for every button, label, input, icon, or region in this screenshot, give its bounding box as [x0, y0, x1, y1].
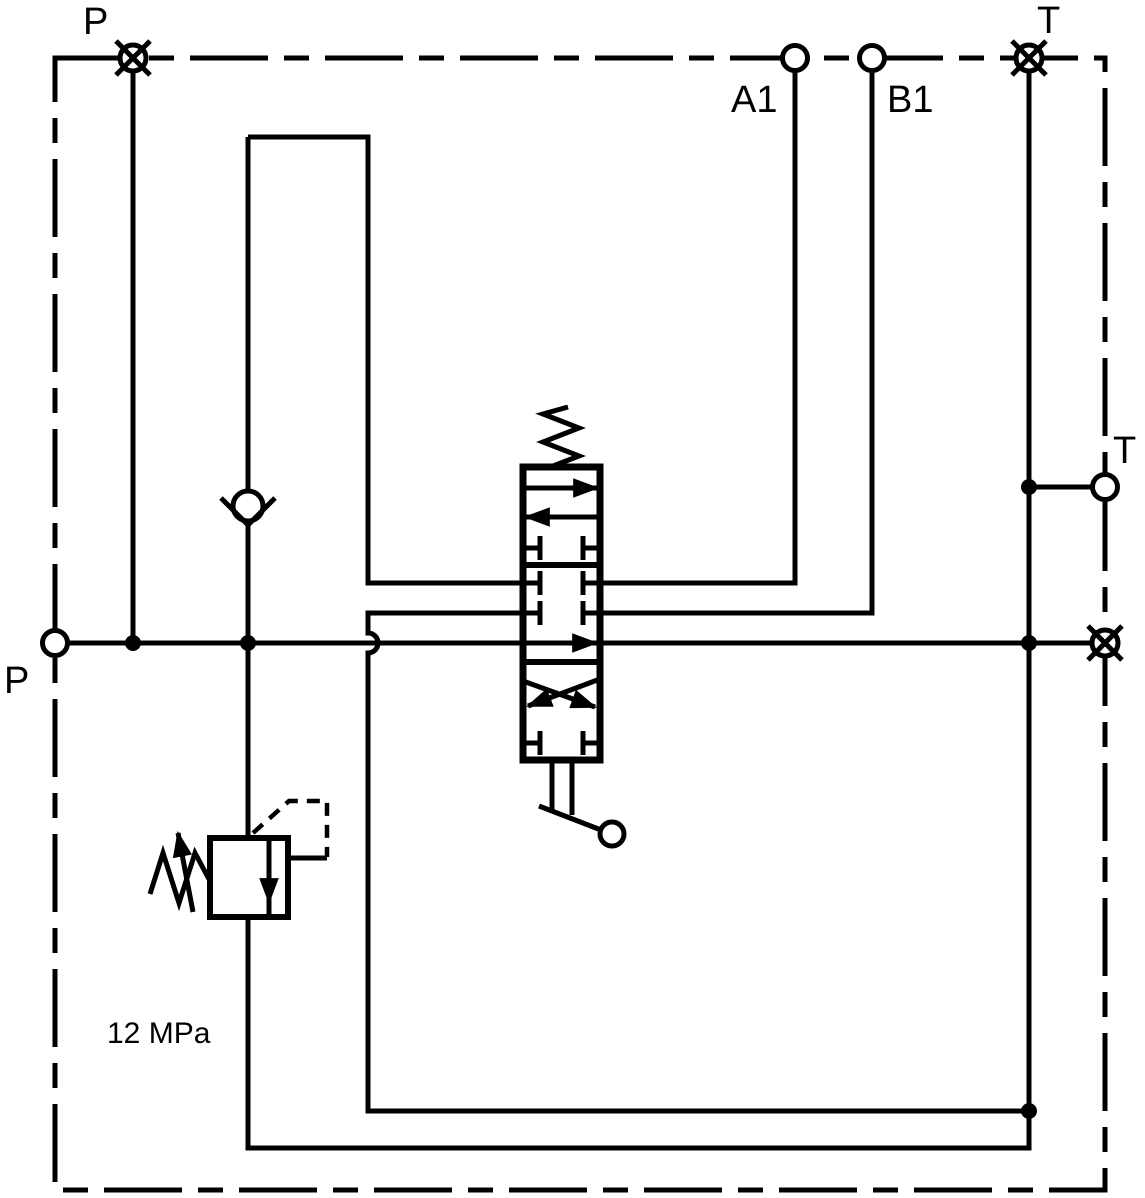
port-p-left-connector-icon — [43, 631, 68, 656]
label-port-a1: A1 — [731, 79, 777, 121]
directional-valve-icon — [523, 407, 624, 846]
junction-dot — [1021, 635, 1037, 651]
label-relief-setting: 12 MPa — [107, 1017, 211, 1050]
relief-valve-icon — [150, 801, 327, 917]
label-port-t-top: T — [1037, 0, 1060, 42]
junction-dot — [1021, 479, 1037, 495]
label-port-b1: B1 — [887, 79, 933, 121]
hydraulic-schematic: P A1 B1 T T P 12 MPa — [0, 0, 1145, 1198]
junction-dot — [240, 635, 256, 651]
port-a1-connector-icon — [783, 46, 808, 71]
check-valve-icon — [221, 491, 275, 525]
enclosure-boundary — [55, 58, 1105, 1190]
connection-lines — [55, 58, 1105, 1148]
label-port-p-top: P — [83, 1, 108, 43]
t-line — [248, 58, 1029, 1148]
lever-knob — [600, 822, 624, 846]
relief-body — [210, 838, 288, 917]
blocked-ports-top — [523, 536, 600, 560]
b1-line — [600, 58, 872, 613]
a1-line — [600, 58, 795, 583]
arrow-cross-2 — [528, 679, 600, 706]
port-t-right-connector-icon — [1093, 475, 1118, 500]
label-port-t-right: T — [1113, 430, 1136, 472]
blocked-ports-bottom — [523, 731, 600, 755]
junction-dot — [125, 635, 141, 651]
a-feed-line — [248, 137, 523, 583]
valve-spring-icon — [543, 407, 579, 466]
port-b1-connector-icon — [860, 46, 885, 71]
label-port-p-left: P — [4, 660, 29, 702]
port-p-top-plug-icon — [116, 41, 150, 75]
b-return-line-with-hop — [368, 613, 1029, 1111]
junction-dot — [1021, 1103, 1037, 1119]
relief-spring-icon — [150, 853, 210, 903]
blocked-ports-middle — [523, 571, 600, 625]
port-right-plug-icon — [1088, 626, 1122, 660]
port-t-top-plug-icon — [1012, 41, 1046, 75]
lever-stem — [552, 760, 572, 815]
valve-lever-icon — [539, 760, 624, 846]
